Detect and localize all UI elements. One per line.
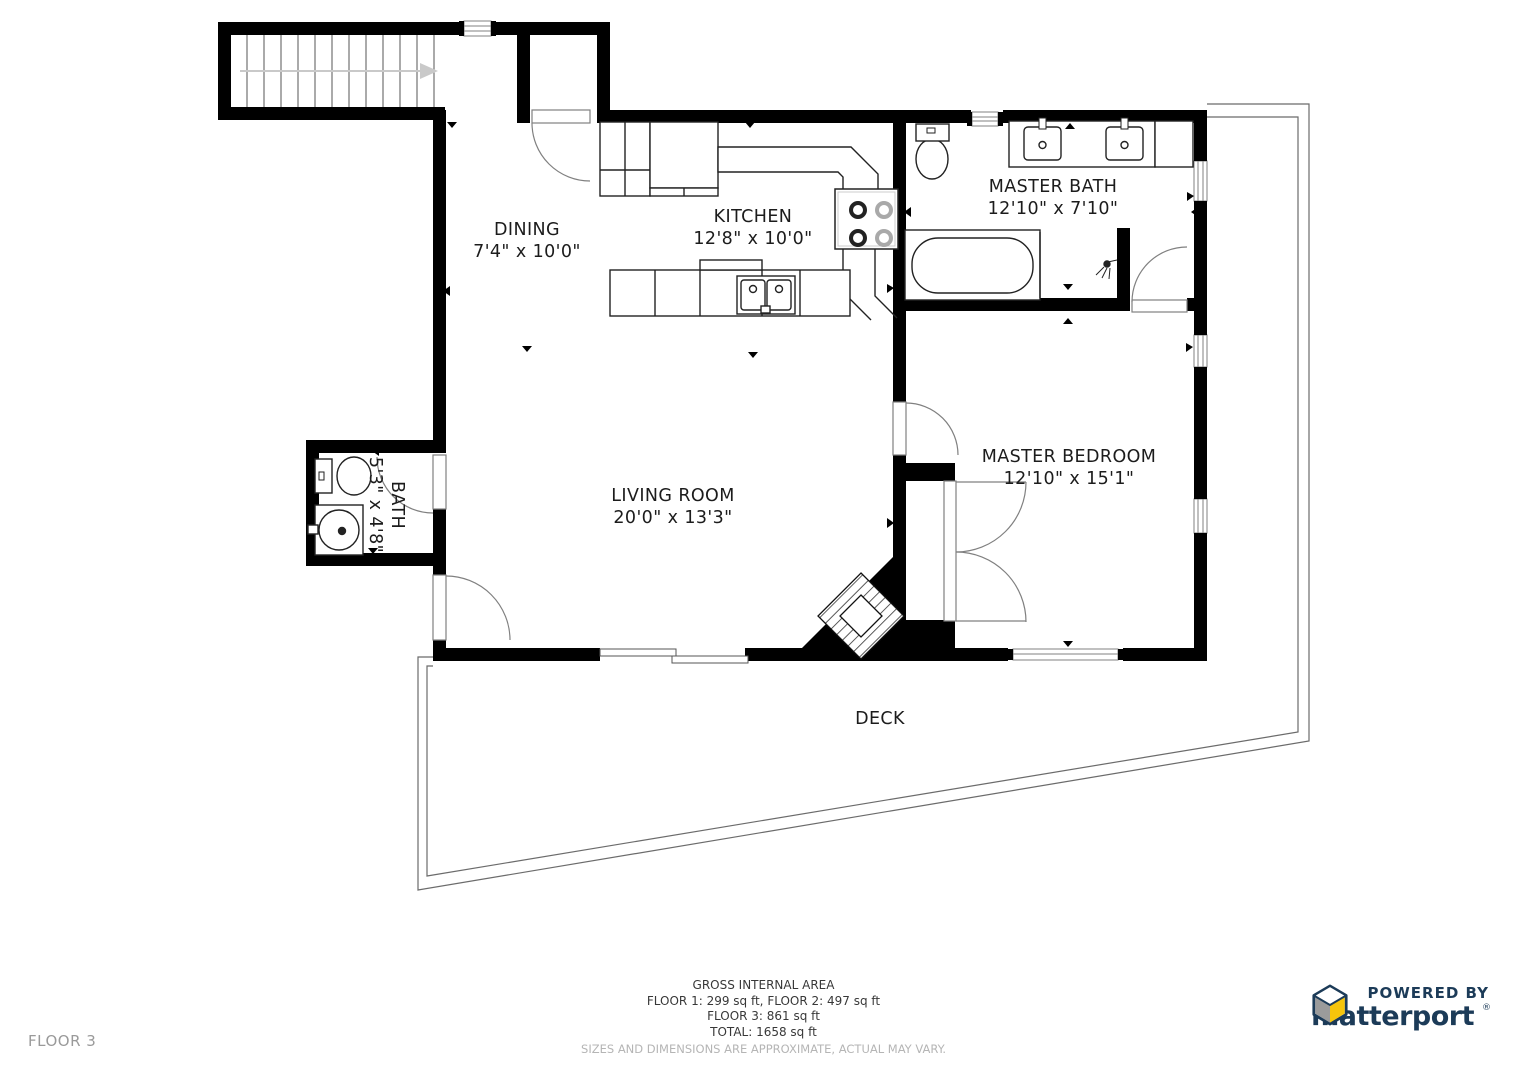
- matterport-branding: POWERED BY matterport ®: [1311, 984, 1491, 1030]
- door-master-bath: [1132, 247, 1187, 312]
- vanity-double-sink: [1009, 118, 1193, 167]
- window-bedroom-bottom: [1008, 649, 1123, 660]
- room-label-bath: BATH 5'3" x 4'8": [363, 457, 407, 553]
- room-label-master-bath: MASTER BATH 12'10" x 7'10": [988, 177, 1119, 221]
- closet-double-doors: [944, 481, 1026, 622]
- room-label-master-bedroom: MASTER BEDROOM 12'10" x 15'1": [982, 447, 1157, 491]
- room-dims: 12'8" x 10'0": [693, 229, 812, 251]
- room-label-living-room: LIVING ROOM 20'0" x 13'3": [611, 486, 734, 530]
- matterport-cube-icon: [1311, 984, 1349, 1026]
- powered-by-label: POWERED BY: [1368, 984, 1489, 1002]
- floorplan-drawing: [0, 0, 1527, 1080]
- room-dims: 12'10" x 7'10": [988, 199, 1119, 221]
- walls: [218, 22, 1207, 661]
- refrigerator: [650, 122, 718, 196]
- room-name: DINING: [473, 220, 581, 242]
- window-masterbath-top: [967, 112, 1003, 126]
- room-dims: 5'3" x 4'8": [363, 457, 385, 553]
- sliding-door: [600, 649, 748, 663]
- area-summary: GROSS INTERNAL AREA FLOOR 1: 299 sq ft, …: [581, 978, 946, 1057]
- room-name: BATH: [385, 457, 407, 553]
- kitchen-island: [610, 260, 850, 316]
- room-dims: 7'4" x 10'0": [473, 242, 581, 264]
- toilet-masterbath: [916, 124, 949, 179]
- room-label-deck: DECK: [855, 709, 905, 731]
- window-right-2: [1194, 330, 1207, 372]
- window-right-1: [1194, 156, 1207, 206]
- registered-mark: ®: [1482, 1003, 1491, 1013]
- room-label-kitchen: KITCHEN 12'8" x 10'0": [693, 207, 812, 251]
- floorplan-canvas: DINING 7'4" x 10'0" KITCHEN 12'8" x 10'0…: [0, 0, 1527, 1080]
- bathtub: [905, 230, 1040, 300]
- room-dims: 12'10" x 15'1": [982, 469, 1157, 491]
- area-line3: TOTAL: 1658 sq ft: [581, 1025, 946, 1041]
- room-name: DECK: [855, 709, 905, 731]
- room-label-dining: DINING 7'4" x 10'0": [473, 220, 581, 264]
- kitchen-sink: [737, 276, 795, 314]
- stairs: [240, 35, 438, 107]
- room-name: KITCHEN: [693, 207, 812, 229]
- door-living-room: [433, 575, 510, 640]
- area-line2: FLOOR 3: 861 sq ft: [581, 1009, 946, 1025]
- window-right-3: [1194, 494, 1207, 538]
- room-name: LIVING ROOM: [611, 486, 734, 508]
- sink-bath: [308, 505, 363, 555]
- stove: [835, 189, 898, 249]
- kitchen-counter-top: [600, 122, 650, 196]
- window-stairs-top: [459, 21, 496, 36]
- area-line1: FLOOR 1: 299 sq ft, FLOOR 2: 497 sq ft: [581, 994, 946, 1010]
- shower: [1040, 232, 1117, 298]
- area-title: GROSS INTERNAL AREA: [581, 978, 946, 994]
- area-disclaimer: SIZES AND DIMENSIONS ARE APPROXIMATE, AC…: [581, 1042, 946, 1057]
- room-name: MASTER BEDROOM: [982, 447, 1157, 469]
- room-name: MASTER BATH: [988, 177, 1119, 199]
- stairs-arrow-icon: [420, 63, 438, 79]
- door-master-bedroom: [893, 402, 958, 455]
- bath-fixtures: [308, 457, 371, 555]
- room-dims: 20'0" x 13'3": [611, 508, 734, 530]
- door-entry-closet: [532, 110, 590, 181]
- floor-label: FLOOR 3: [28, 1032, 96, 1050]
